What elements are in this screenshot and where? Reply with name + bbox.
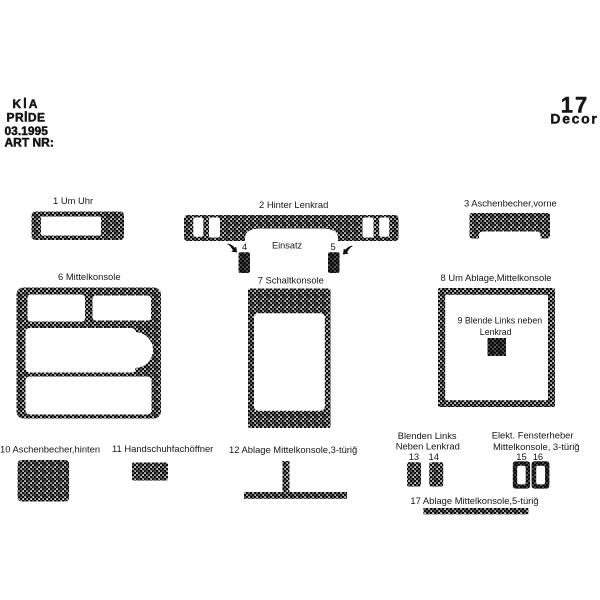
svg-text:8 Um Ablage,Mittelkonsole: 8 Um Ablage,Mittelkonsole (441, 272, 552, 283)
svg-text:Decor: Decor (550, 111, 598, 127)
svg-text:3 Aschenbecher,vorne: 3 Aschenbecher,vorne (464, 198, 557, 209)
svg-text:2 Hinter Lenkrad: 2 Hinter Lenkrad (259, 199, 328, 210)
svg-text:6 Mittelkonsole: 6 Mittelkonsole (58, 271, 121, 282)
svg-text:15: 15 (516, 451, 526, 462)
svg-text:KİA: KİA (13, 96, 40, 111)
svg-text:4: 4 (242, 241, 247, 252)
svg-text:Lenkrad: Lenkrad (480, 327, 512, 337)
svg-text:7 Schaltkonsole: 7 Schaltkonsole (258, 275, 324, 286)
svg-text:16: 16 (533, 451, 543, 462)
svg-text:13: 13 (409, 451, 419, 462)
svg-text:10 Aschenbecher,hinten: 10 Aschenbecher,hinten (0, 444, 100, 455)
svg-text:9 Blende Links neben: 9 Blende Links neben (458, 316, 543, 326)
svg-text:14: 14 (429, 451, 439, 462)
svg-text:12 Ablage Mittelkonsole,3-tür: 12 Ablage Mittelkonsole,3-türiğ (229, 444, 357, 455)
svg-text:5: 5 (331, 241, 336, 252)
svg-text:Einsatz: Einsatz (272, 241, 303, 251)
svg-text:1 Um Uhr: 1 Um Uhr (53, 195, 93, 206)
svg-text:Neben Lenkrad: Neben Lenkrad (396, 441, 460, 452)
svg-text:Blenden Links: Blenden Links (398, 430, 457, 441)
svg-text:Elekt. Fensterheber: Elekt. Fensterheber (492, 430, 574, 441)
svg-text:ART NR:: ART NR: (5, 135, 54, 149)
svg-text:PRİDE: PRİDE (7, 110, 46, 125)
svg-text:11 Handschuhfachöffner: 11 Handschuhfachöffner (112, 443, 213, 454)
svg-text:17 Ablage Mittelkonsole,5-tür: 17 Ablage Mittelkonsole,5-türiğ (410, 495, 538, 506)
